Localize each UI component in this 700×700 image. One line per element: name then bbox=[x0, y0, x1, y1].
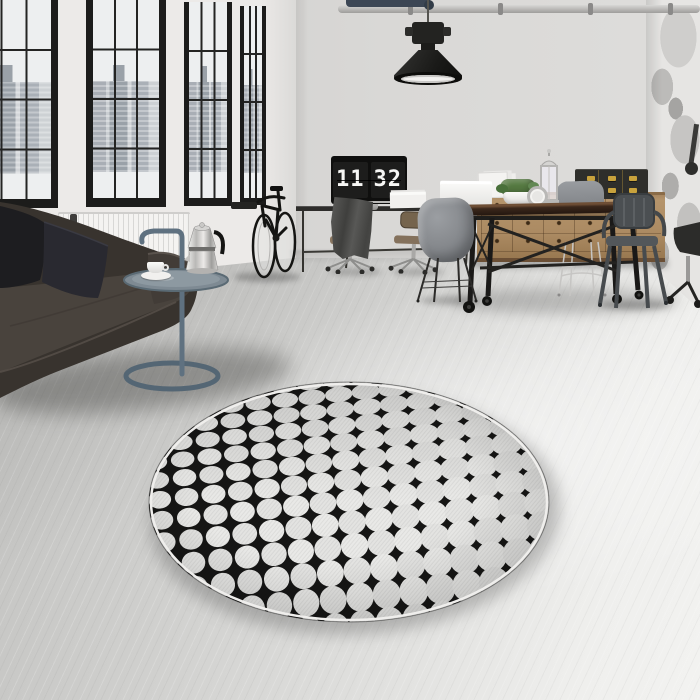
lamp-neck bbox=[421, 43, 435, 51]
draped-garment bbox=[331, 197, 373, 259]
pipe-joint bbox=[498, 3, 503, 15]
lamp-cord bbox=[427, 0, 429, 24]
shell-chair-near bbox=[417, 197, 475, 263]
moka-pot bbox=[180, 222, 226, 278]
metal-armchair bbox=[596, 192, 668, 314]
round-patterned-rug bbox=[147, 380, 551, 624]
window-2 bbox=[86, 0, 166, 207]
lamp-fitting bbox=[412, 22, 444, 44]
brass-clasp bbox=[629, 176, 637, 181]
lamp-diffuser bbox=[401, 75, 455, 83]
wall-fixture-knob bbox=[685, 162, 698, 175]
window-4-glass-skyline bbox=[244, 6, 262, 198]
window-2-glass-skyline bbox=[93, 0, 159, 198]
loft-scene: 11 32 bbox=[0, 0, 700, 700]
pipe-joint bbox=[588, 3, 593, 15]
rug-pattern bbox=[147, 380, 551, 624]
window-3 bbox=[184, 2, 232, 206]
window-4 bbox=[240, 6, 266, 205]
lamp-knob bbox=[443, 27, 451, 36]
window-3-glass-skyline bbox=[189, 2, 227, 198]
pendant-lamp bbox=[392, 0, 464, 104]
window-1 bbox=[0, 0, 58, 208]
window-1-glass-skyline bbox=[0, 0, 51, 199]
lamp-knob bbox=[405, 27, 413, 36]
brass-clasp bbox=[608, 176, 616, 181]
pipe-joint bbox=[668, 3, 673, 15]
coffee-cup-handle bbox=[162, 264, 169, 271]
side-table-hook bbox=[142, 231, 182, 254]
office-chair-partial bbox=[664, 222, 700, 312]
bicycle bbox=[228, 180, 308, 284]
shell-chair-near-legs bbox=[414, 258, 480, 306]
clock-minutes-panel: 32 bbox=[371, 162, 406, 198]
flip-split-line bbox=[337, 180, 401, 181]
